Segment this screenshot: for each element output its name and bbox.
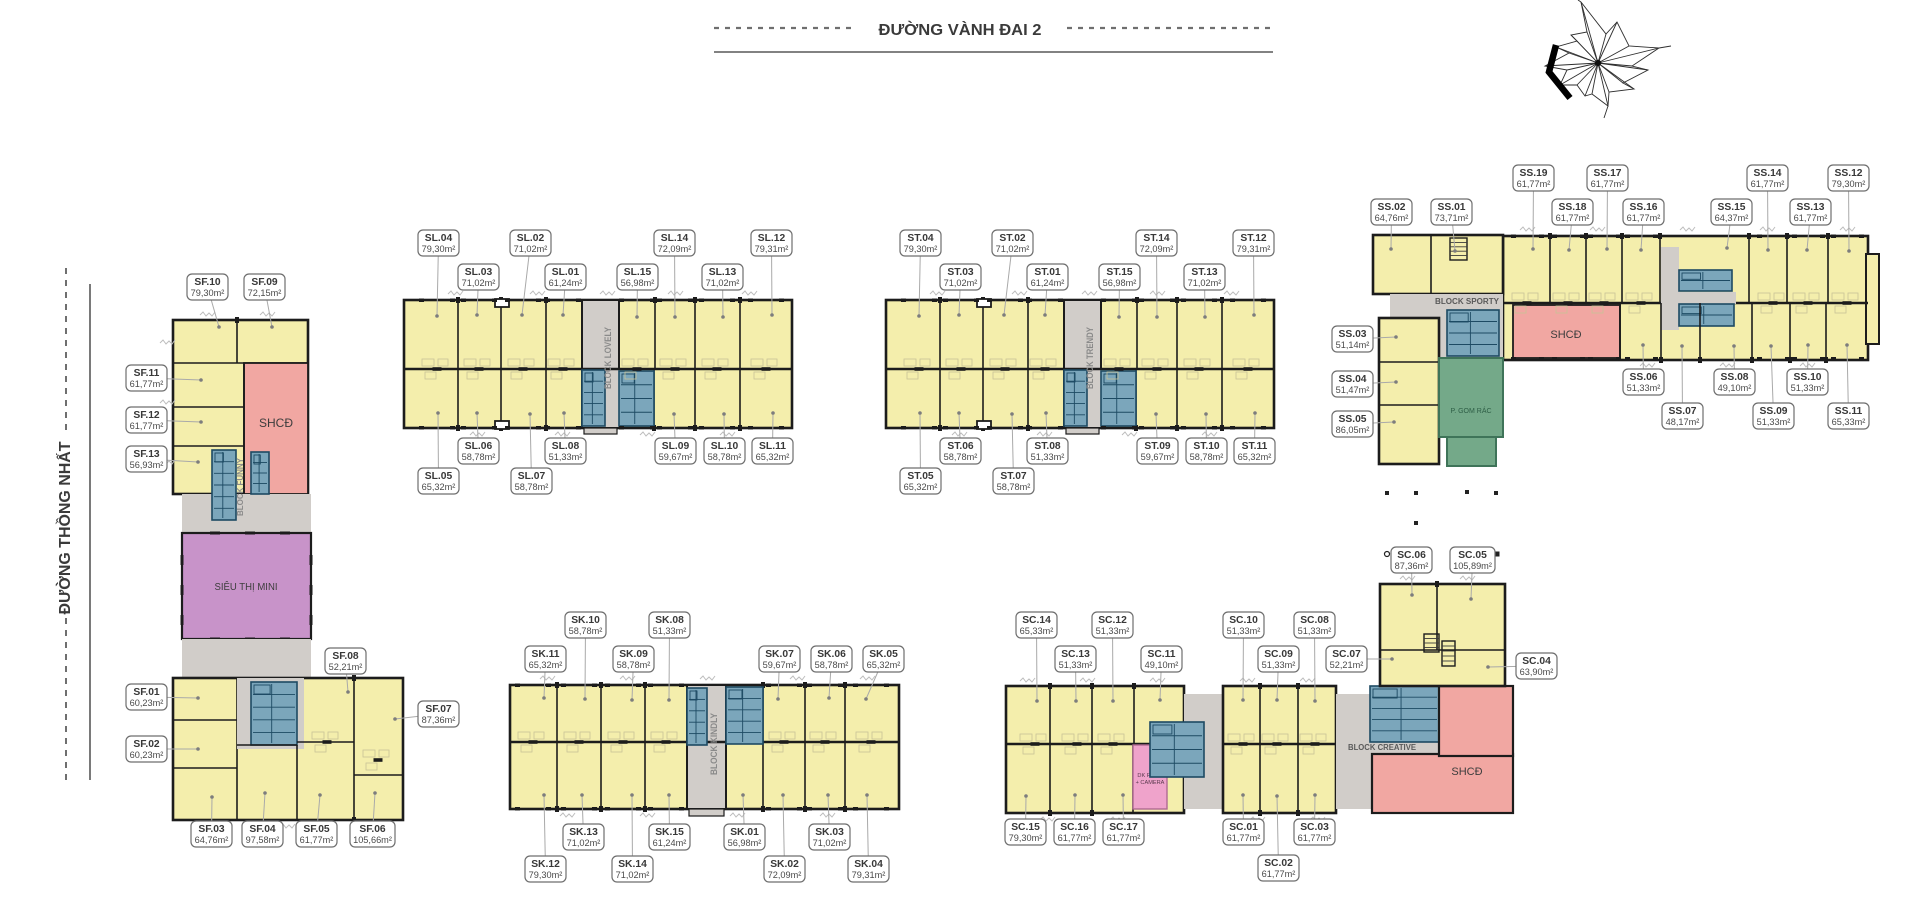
svg-text:SC.05: SC.05	[1458, 550, 1487, 561]
svg-text:SC.15: SC.15	[1011, 822, 1040, 833]
svg-text:SS.13: SS.13	[1796, 202, 1824, 213]
svg-text:71,02m²: 71,02m²	[996, 244, 1030, 254]
svg-text:SF.13: SF.13	[133, 449, 160, 460]
svg-text:65,32m²: 65,32m²	[422, 482, 456, 492]
svg-text:79,30m²: 79,30m²	[529, 870, 563, 880]
svg-text:60,23m²: 60,23m²	[130, 698, 164, 708]
svg-text:51,33m²: 51,33m²	[1227, 626, 1261, 636]
svg-text:SF.09: SF.09	[251, 277, 278, 288]
svg-text:52,21m²: 52,21m²	[329, 662, 363, 672]
svg-text:SF.05: SF.05	[303, 824, 330, 835]
svg-text:97,58m²: 97,58m²	[246, 835, 280, 845]
svg-text:61,77m²: 61,77m²	[1794, 213, 1828, 223]
svg-text:79,31m²: 79,31m²	[1237, 244, 1271, 254]
svg-text:58,78m²: 58,78m²	[1190, 452, 1224, 462]
svg-text:SC.14: SC.14	[1022, 615, 1051, 626]
svg-text:61,24m²: 61,24m²	[1031, 278, 1065, 288]
svg-text:SF.10: SF.10	[194, 277, 221, 288]
svg-text:64,37m²: 64,37m²	[1715, 213, 1749, 223]
svg-text:71,02m²: 71,02m²	[567, 838, 601, 848]
svg-text:79,30m²: 79,30m²	[904, 244, 938, 254]
svg-text:64,76m²: 64,76m²	[195, 835, 229, 845]
svg-text:ST.13: ST.13	[1191, 267, 1218, 278]
svg-text:65,32m²: 65,32m²	[867, 660, 901, 670]
svg-text:SL.01: SL.01	[552, 267, 580, 278]
svg-text:56,93m²: 56,93m²	[130, 460, 164, 470]
svg-text:58,78m²: 58,78m²	[708, 452, 742, 462]
svg-text:61,77m²: 61,77m²	[1751, 179, 1785, 189]
svg-text:SS.15: SS.15	[1717, 202, 1745, 213]
svg-text:SK.09: SK.09	[619, 649, 648, 660]
svg-text:SK.14: SK.14	[618, 859, 647, 870]
svg-text:BLOCK KINDLY: BLOCK KINDLY	[709, 713, 719, 775]
svg-text:SC.11: SC.11	[1147, 649, 1175, 660]
svg-text:65,32m²: 65,32m²	[529, 660, 563, 670]
svg-text:SF.02: SF.02	[133, 739, 160, 750]
svg-text:SS.01: SS.01	[1437, 202, 1465, 213]
svg-text:SC.04: SC.04	[1522, 656, 1551, 667]
svg-text:SL.13: SL.13	[709, 267, 737, 278]
svg-text:SS.08: SS.08	[1720, 372, 1748, 383]
svg-text:58,78m²: 58,78m²	[462, 452, 496, 462]
svg-text:BLOCK FUNNY: BLOCK FUNNY	[235, 458, 245, 516]
svg-text:71,02m²: 71,02m²	[813, 838, 847, 848]
svg-text:P. GOM RÁC: P. GOM RÁC	[1450, 406, 1491, 415]
svg-text:SHCĐ: SHCĐ	[1550, 329, 1581, 341]
svg-text:87,36m²: 87,36m²	[422, 715, 456, 725]
svg-text:86,05m²: 86,05m²	[1336, 425, 1370, 435]
svg-text:79,31m²: 79,31m²	[755, 244, 789, 254]
svg-text:ST.02: ST.02	[999, 233, 1026, 244]
svg-text:59,67m²: 59,67m²	[659, 452, 693, 462]
svg-text:SF.12: SF.12	[133, 410, 160, 421]
svg-text:SC.01: SC.01	[1229, 822, 1258, 833]
svg-text:BLOCK LOVELY: BLOCK LOVELY	[603, 327, 613, 389]
svg-text:73,71m²: 73,71m²	[1435, 213, 1469, 223]
svg-text:63,90m²: 63,90m²	[1520, 667, 1554, 677]
svg-text:52,21m²: 52,21m²	[1330, 660, 1364, 670]
svg-text:SL.04: SL.04	[425, 233, 453, 244]
svg-text:ĐƯỜNG VÀNH ĐAI 2: ĐƯỜNG VÀNH ĐAI 2	[879, 20, 1042, 39]
svg-text:SC.03: SC.03	[1300, 822, 1329, 833]
svg-text:65,32m²: 65,32m²	[756, 452, 790, 462]
svg-text:61,77m²: 61,77m²	[130, 421, 164, 431]
svg-text:56,98m²: 56,98m²	[728, 838, 762, 848]
svg-text:SL.11: SL.11	[759, 441, 786, 452]
svg-text:SK.04: SK.04	[854, 859, 883, 870]
svg-text:SK.13: SK.13	[569, 827, 598, 838]
svg-text:61,77m²: 61,77m²	[1517, 179, 1551, 189]
svg-text:49,10m²: 49,10m²	[1718, 383, 1752, 393]
svg-text:ST.05: ST.05	[907, 471, 934, 482]
svg-text:SC.02: SC.02	[1264, 858, 1293, 869]
svg-text:SK.15: SK.15	[655, 827, 684, 838]
svg-text:SS.10: SS.10	[1793, 372, 1821, 383]
svg-text:ST.04: ST.04	[907, 233, 934, 244]
svg-text:BLOCK TRENDY: BLOCK TRENDY	[1085, 327, 1095, 389]
svg-text:ST.14: ST.14	[1143, 233, 1170, 244]
svg-text:SF.08: SF.08	[332, 651, 359, 662]
svg-text:SL.09: SL.09	[662, 441, 690, 452]
svg-text:BLOCK SPORTY: BLOCK SPORTY	[1435, 296, 1499, 306]
svg-text:SC.09: SC.09	[1264, 649, 1293, 660]
svg-text:51,33m²: 51,33m²	[1757, 417, 1791, 427]
svg-text:61,77m²: 61,77m²	[1591, 179, 1625, 189]
svg-text:61,24m²: 61,24m²	[653, 838, 687, 848]
svg-text:SS.07: SS.07	[1668, 406, 1696, 417]
svg-text:61,77m²: 61,77m²	[130, 379, 164, 389]
svg-text:61,24m²: 61,24m²	[549, 278, 583, 288]
svg-text:71,02m²: 71,02m²	[944, 278, 978, 288]
svg-text:65,32m²: 65,32m²	[1238, 452, 1272, 462]
svg-text:51,33m²: 51,33m²	[1096, 626, 1130, 636]
svg-text:51,47m²: 51,47m²	[1336, 385, 1370, 395]
svg-text:72,09m²: 72,09m²	[1140, 244, 1174, 254]
svg-text:79,31m²: 79,31m²	[852, 870, 886, 880]
svg-text:ST.15: ST.15	[1106, 267, 1133, 278]
svg-text:SC.10: SC.10	[1229, 615, 1258, 626]
svg-text:SS.02: SS.02	[1377, 202, 1405, 213]
svg-text:SS.05: SS.05	[1338, 414, 1366, 425]
svg-text:105,66m²: 105,66m²	[353, 835, 392, 845]
svg-text:SC.06: SC.06	[1397, 550, 1426, 561]
svg-text:60,23m²: 60,23m²	[130, 750, 164, 760]
svg-text:79,30m²: 79,30m²	[1009, 833, 1043, 843]
svg-text:SF.03: SF.03	[198, 824, 225, 835]
svg-text:SS.09: SS.09	[1759, 406, 1787, 417]
svg-text:61,77m²: 61,77m²	[1627, 213, 1661, 223]
svg-text:SS.04: SS.04	[1338, 374, 1366, 385]
svg-text:SS.06: SS.06	[1629, 372, 1657, 383]
svg-text:71,02m²: 71,02m²	[462, 278, 496, 288]
svg-text:51,33m²: 51,33m²	[1059, 660, 1093, 670]
svg-text:51,33m²: 51,33m²	[549, 452, 583, 462]
svg-text:SHCĐ: SHCĐ	[1451, 766, 1482, 778]
svg-text:SS.12: SS.12	[1834, 168, 1862, 179]
svg-text:61,77m²: 61,77m²	[1107, 833, 1141, 843]
svg-text:61,77m²: 61,77m²	[300, 835, 334, 845]
svg-text:SK.10: SK.10	[571, 615, 600, 626]
svg-text:72,15m²: 72,15m²	[248, 288, 282, 298]
svg-text:71,02m²: 71,02m²	[616, 870, 650, 880]
svg-text:SL.15: SL.15	[624, 267, 652, 278]
svg-text:SHCĐ: SHCĐ	[259, 416, 293, 430]
svg-text:58,78m²: 58,78m²	[515, 482, 549, 492]
svg-text:71,02m²: 71,02m²	[706, 278, 740, 288]
svg-text:71,02m²: 71,02m²	[1188, 278, 1222, 288]
svg-text:49,10m²: 49,10m²	[1145, 660, 1179, 670]
svg-text:64,76m²: 64,76m²	[1375, 213, 1409, 223]
svg-text:ST.03: ST.03	[947, 267, 974, 278]
svg-text:105,89m²: 105,89m²	[1453, 561, 1492, 571]
svg-text:SF.07: SF.07	[425, 704, 452, 715]
svg-text:ĐƯỜNG THỒNG NHẤT: ĐƯỜNG THỒNG NHẤT	[56, 441, 74, 615]
svg-text:SK.05: SK.05	[869, 649, 898, 660]
svg-text:SL.05: SL.05	[425, 471, 453, 482]
svg-text:SK.06: SK.06	[817, 649, 846, 660]
svg-text:SK.12: SK.12	[531, 859, 560, 870]
svg-text:65,33m²: 65,33m²	[1020, 626, 1054, 636]
svg-text:SS.03: SS.03	[1338, 329, 1366, 340]
svg-text:SC.07: SC.07	[1332, 649, 1361, 660]
svg-text:SF.04: SF.04	[249, 824, 276, 835]
svg-text:ST.09: ST.09	[1144, 441, 1171, 452]
svg-text:51,33m²: 51,33m²	[653, 626, 687, 636]
svg-text:SK.11: SK.11	[531, 649, 559, 660]
svg-text:BLOCK CREATIVE: BLOCK CREATIVE	[1348, 742, 1416, 752]
svg-text:SC.08: SC.08	[1300, 615, 1329, 626]
svg-text:87,36m²: 87,36m²	[1395, 561, 1429, 571]
svg-text:SS.11: SS.11	[1835, 406, 1863, 417]
svg-text:72,09m²: 72,09m²	[658, 244, 692, 254]
svg-text:ST.12: ST.12	[1240, 233, 1267, 244]
svg-text:ST.08: ST.08	[1034, 441, 1061, 452]
svg-text:61,77m²: 61,77m²	[1058, 833, 1092, 843]
svg-text:79,30m²: 79,30m²	[191, 288, 225, 298]
svg-text:SF.11: SF.11	[134, 368, 160, 379]
svg-text:56,98m²: 56,98m²	[1103, 278, 1137, 288]
svg-text:48,17m²: 48,17m²	[1666, 417, 1700, 427]
svg-text:SS.18: SS.18	[1558, 202, 1586, 213]
svg-text:SK.08: SK.08	[655, 615, 684, 626]
svg-text:58,78m²: 58,78m²	[944, 452, 978, 462]
svg-text:56,98m²: 56,98m²	[621, 278, 655, 288]
svg-text:58,78m²: 58,78m²	[997, 482, 1031, 492]
svg-text:SL.02: SL.02	[517, 233, 545, 244]
svg-text:ST.11: ST.11	[1242, 441, 1268, 452]
svg-text:ST.01: ST.01	[1034, 267, 1061, 278]
svg-text:65,32m²: 65,32m²	[904, 482, 938, 492]
svg-text:61,77m²: 61,77m²	[1556, 213, 1590, 223]
svg-text:ST.07: ST.07	[1000, 471, 1027, 482]
svg-text:SC.13: SC.13	[1061, 649, 1090, 660]
svg-text:51,33m²: 51,33m²	[1298, 626, 1332, 636]
svg-text:SL.12: SL.12	[758, 233, 786, 244]
svg-text:61,77m²: 61,77m²	[1262, 869, 1296, 879]
svg-text:51,33m²: 51,33m²	[1262, 660, 1296, 670]
svg-text:59,67m²: 59,67m²	[763, 660, 797, 670]
svg-text:SK.07: SK.07	[765, 649, 794, 660]
svg-text:SC.12: SC.12	[1098, 615, 1127, 626]
svg-text:SL.06: SL.06	[465, 441, 493, 452]
svg-text:61,77m²: 61,77m²	[1298, 833, 1332, 843]
svg-text:ST.10: ST.10	[1193, 441, 1220, 452]
svg-text:SL.10: SL.10	[711, 441, 739, 452]
svg-text:SK.02: SK.02	[770, 859, 799, 870]
svg-text:58,78m²: 58,78m²	[815, 660, 849, 670]
svg-text:51,33m²: 51,33m²	[1627, 383, 1661, 393]
svg-text:ST.06: ST.06	[947, 441, 974, 452]
svg-text:SF.01: SF.01	[133, 687, 160, 698]
svg-text:SK.01: SK.01	[730, 827, 759, 838]
svg-text:71,02m²: 71,02m²	[514, 244, 548, 254]
svg-text:SIÊU THỊ MINI: SIÊU THỊ MINI	[215, 580, 278, 593]
svg-text:SC.16: SC.16	[1060, 822, 1089, 833]
svg-text:SS.17: SS.17	[1593, 168, 1621, 179]
svg-text:51,33m²: 51,33m²	[1031, 452, 1065, 462]
svg-text:61,77m²: 61,77m²	[1227, 833, 1261, 843]
svg-text:SL.03: SL.03	[465, 267, 493, 278]
svg-text:51,33m²: 51,33m²	[1791, 383, 1825, 393]
svg-text:SL.08: SL.08	[552, 441, 580, 452]
svg-text:SL.14: SL.14	[661, 233, 689, 244]
svg-text:SK.03: SK.03	[815, 827, 844, 838]
svg-text:59,67m²: 59,67m²	[1141, 452, 1175, 462]
svg-text:SL.07: SL.07	[518, 471, 546, 482]
svg-text:SF.06: SF.06	[359, 824, 386, 835]
svg-text:SS.16: SS.16	[1629, 202, 1657, 213]
svg-text:+ CAMERA: + CAMERA	[1136, 780, 1165, 786]
svg-text:58,78m²: 58,78m²	[569, 626, 603, 636]
svg-text:79,30m²: 79,30m²	[1832, 179, 1866, 189]
svg-text:SS.19: SS.19	[1519, 168, 1547, 179]
svg-text:72,09m²: 72,09m²	[768, 870, 802, 880]
svg-text:SC.17: SC.17	[1109, 822, 1138, 833]
svg-text:65,33m²: 65,33m²	[1832, 417, 1866, 427]
svg-text:SS.14: SS.14	[1753, 168, 1781, 179]
svg-text:58,78m²: 58,78m²	[617, 660, 651, 670]
svg-text:79,30m²: 79,30m²	[422, 244, 456, 254]
svg-text:51,14m²: 51,14m²	[1336, 340, 1370, 350]
